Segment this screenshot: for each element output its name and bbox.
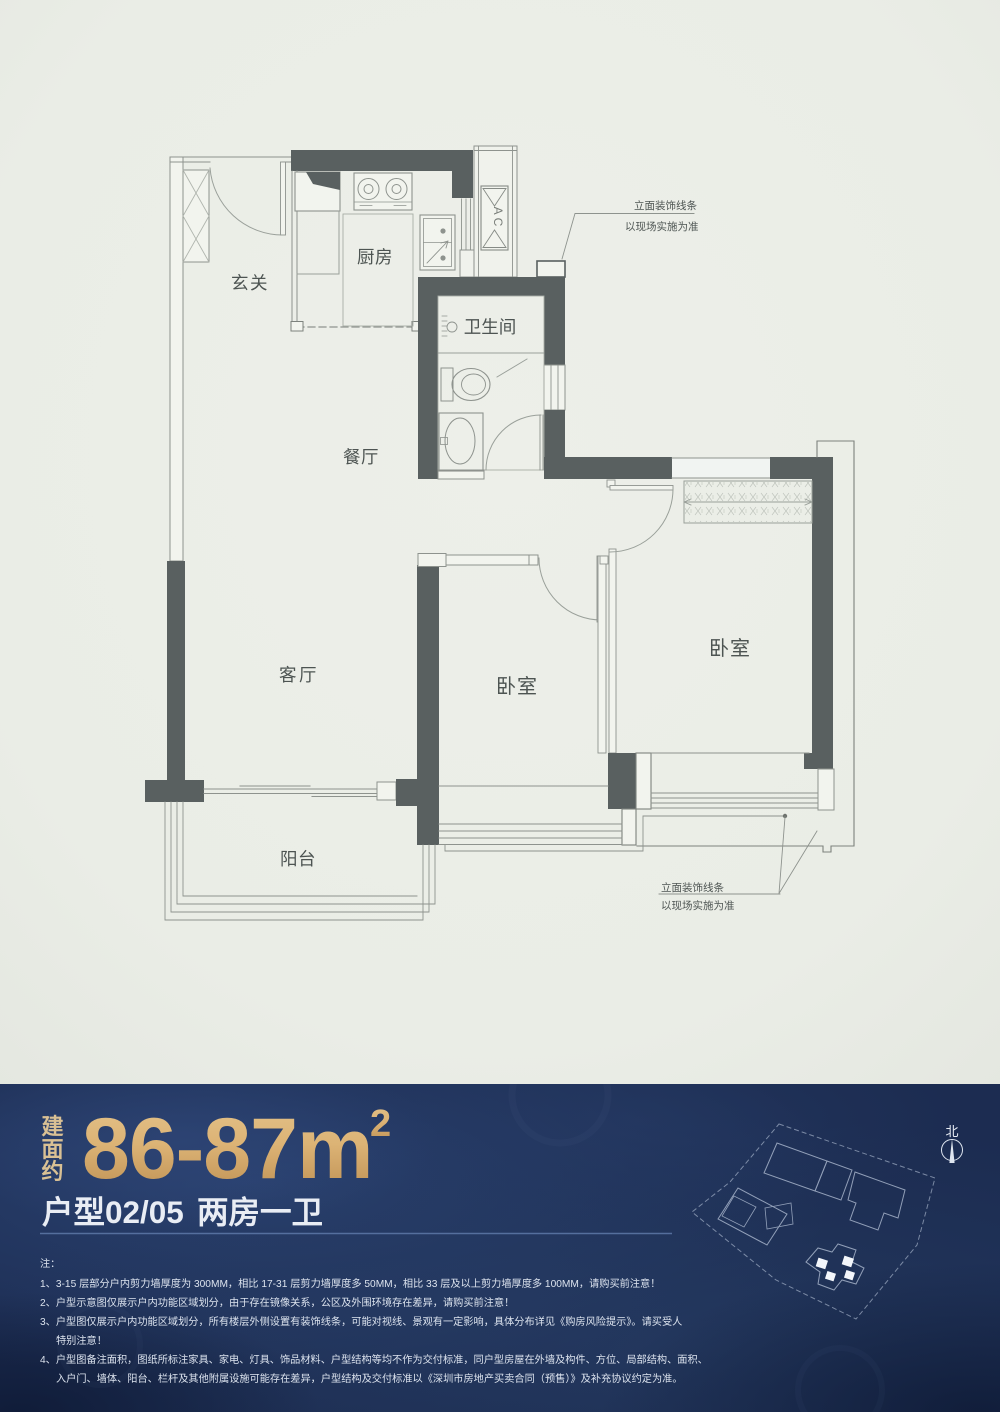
- svg-text:建: 建: [41, 1114, 63, 1139]
- svg-text:注：: 注：: [40, 1257, 60, 1270]
- svg-text:以现场实施为准: 以现场实施为准: [625, 220, 699, 233]
- svg-text:厨房: 厨房: [357, 247, 393, 267]
- svg-text:以现场实施为准: 以现场实施为准: [661, 899, 735, 912]
- svg-text:立面装饰线条: 立面装饰线条: [634, 199, 697, 212]
- svg-text:1、3-15 层部分户内剪力墙厚度为 300MM，相比 17: 1、3-15 层部分户内剪力墙厚度为 300MM，相比 17-31 层剪力墙厚度…: [40, 1277, 660, 1290]
- svg-text:户型02/05: 户型02/05: [42, 1194, 184, 1230]
- svg-text:卧室: 卧室: [496, 675, 538, 698]
- svg-text:AC: AC: [491, 207, 505, 230]
- svg-text:玄关: 玄关: [231, 273, 269, 293]
- svg-text:4、户型图备注面积，图纸所标注家具、家电、灯具、饰品材料、户: 4、户型图备注面积，图纸所标注家具、家电、灯具、饰品材料、户型结构等均不作为交付…: [40, 1353, 708, 1366]
- svg-text:立面装饰线条: 立面装饰线条: [661, 881, 724, 894]
- svg-text:2、户型示意图仅展示户内功能区域划分，由于存在镜像关系，公区: 2、户型示意图仅展示户内功能区域划分，由于存在镜像关系，公区及外围环境存在差异，…: [40, 1296, 514, 1309]
- svg-text:阳台: 阳台: [280, 849, 316, 869]
- svg-text:入户门、墙体、阳台、栏杆及其他附属设施可能存在差异，户型结构: 入户门、墙体、阳台、栏杆及其他附属设施可能存在差异，户型结构及交付标准以《深圳市…: [56, 1372, 683, 1385]
- svg-text:餐厅: 餐厅: [343, 447, 379, 467]
- svg-text:约: 约: [41, 1159, 63, 1184]
- svg-text:卧室: 卧室: [709, 637, 751, 660]
- svg-text:卫生间: 卫生间: [464, 317, 517, 337]
- svg-text:北: 北: [945, 1124, 958, 1139]
- svg-text:特别注意！: 特别注意！: [56, 1334, 107, 1347]
- svg-text:两房一卫: 两房一卫: [197, 1194, 323, 1230]
- svg-text:2: 2: [370, 1103, 391, 1145]
- svg-text:客厅: 客厅: [279, 665, 319, 685]
- svg-text:3、户型图仅展示户内功能区域划分，所有楼层外侧设置有装饰线条: 3、户型图仅展示户内功能区域划分，所有楼层外侧设置有装饰线条，可能对视线、景观有…: [40, 1315, 682, 1328]
- svg-text:86-87m: 86-87m: [82, 1101, 372, 1197]
